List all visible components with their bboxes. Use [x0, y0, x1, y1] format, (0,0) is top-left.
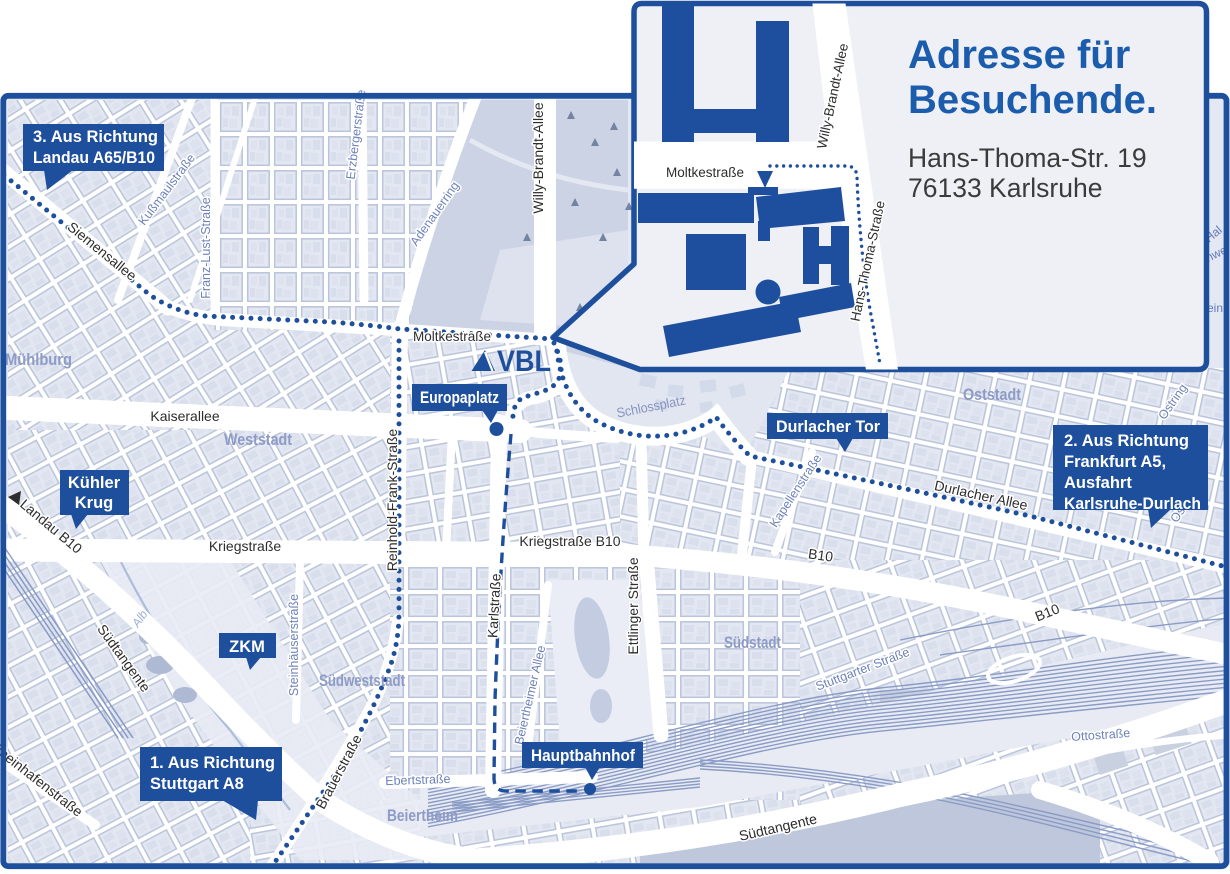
svg-text:Südstadt: Südstadt	[724, 633, 781, 652]
svg-text:Besuchende.: Besuchende.	[908, 78, 1157, 122]
svg-text:Landau A65/B10: Landau A65/B10	[33, 149, 155, 167]
svg-text:Kriegstraße B10: Kriegstraße B10	[519, 533, 620, 549]
svg-text:ein: ein	[1207, 301, 1223, 315]
svg-text:Kaiserallee: Kaiserallee	[150, 408, 219, 424]
svg-text:3. Aus Richtung: 3. Aus Richtung	[33, 128, 158, 146]
svg-text:Krug: Krug	[75, 494, 114, 512]
svg-text:Hauptbahnhof: Hauptbahnhof	[531, 747, 635, 765]
svg-text:Weststadt: Weststadt	[224, 430, 292, 449]
svg-text:Moltkestraße: Moltkestraße	[413, 328, 491, 344]
svg-text:Steinhäuserstraße: Steinhäuserstraße	[287, 594, 301, 696]
svg-text:Moltkestraße: Moltkestraße	[666, 165, 744, 180]
svg-text:Franz-Lust-Straße: Franz-Lust-Straße	[199, 197, 213, 298]
svg-text:Oststadt: Oststadt	[963, 385, 1021, 404]
svg-text:ZKM: ZKM	[229, 638, 265, 656]
svg-text:Reinhold-Frank-Straße: Reinhold-Frank-Straße	[384, 429, 400, 572]
svg-text:1. Aus Richtung: 1. Aus Richtung	[150, 754, 275, 772]
svg-text:Frankfurt A5,: Frankfurt A5,	[1064, 453, 1166, 471]
svg-text:Südweststadt: Südweststadt	[319, 671, 405, 690]
svg-text:Beiertheim: Beiertheim	[387, 806, 458, 825]
svg-text:2. Aus Richtung: 2. Aus Richtung	[1064, 432, 1189, 450]
svg-text:Kühler: Kühler	[68, 474, 121, 492]
svg-text:Ettlinger Straße: Ettlinger Straße	[625, 557, 641, 654]
svg-text:Mühlburg: Mühlburg	[5, 350, 72, 369]
svg-text:Karlstraße: Karlstraße	[484, 573, 503, 639]
svg-text:Stuttgart A8: Stuttgart A8	[150, 775, 244, 793]
svg-text:Willy-Brandt-Allee: Willy-Brandt-Allee	[530, 102, 546, 213]
svg-text:Karlsruhe-Durlach: Karlsruhe-Durlach	[1064, 495, 1201, 513]
svg-text:76133 Karlsruhe: 76133 Karlsruhe	[908, 173, 1102, 203]
svg-text:Hans-Thoma-Str. 19: Hans-Thoma-Str. 19	[908, 143, 1147, 173]
svg-text:Ebertstraße: Ebertstraße	[385, 772, 451, 788]
svg-text:Ausfahrt: Ausfahrt	[1064, 474, 1132, 492]
svg-text:VBL: VBL	[497, 345, 551, 378]
svg-text:Kriegstraße: Kriegstraße	[209, 538, 282, 554]
svg-text:Durlacher Tor: Durlacher Tor	[776, 418, 881, 436]
svg-text:Adresse für: Adresse für	[908, 33, 1130, 77]
svg-text:Europaplatz: Europaplatz	[420, 389, 499, 407]
